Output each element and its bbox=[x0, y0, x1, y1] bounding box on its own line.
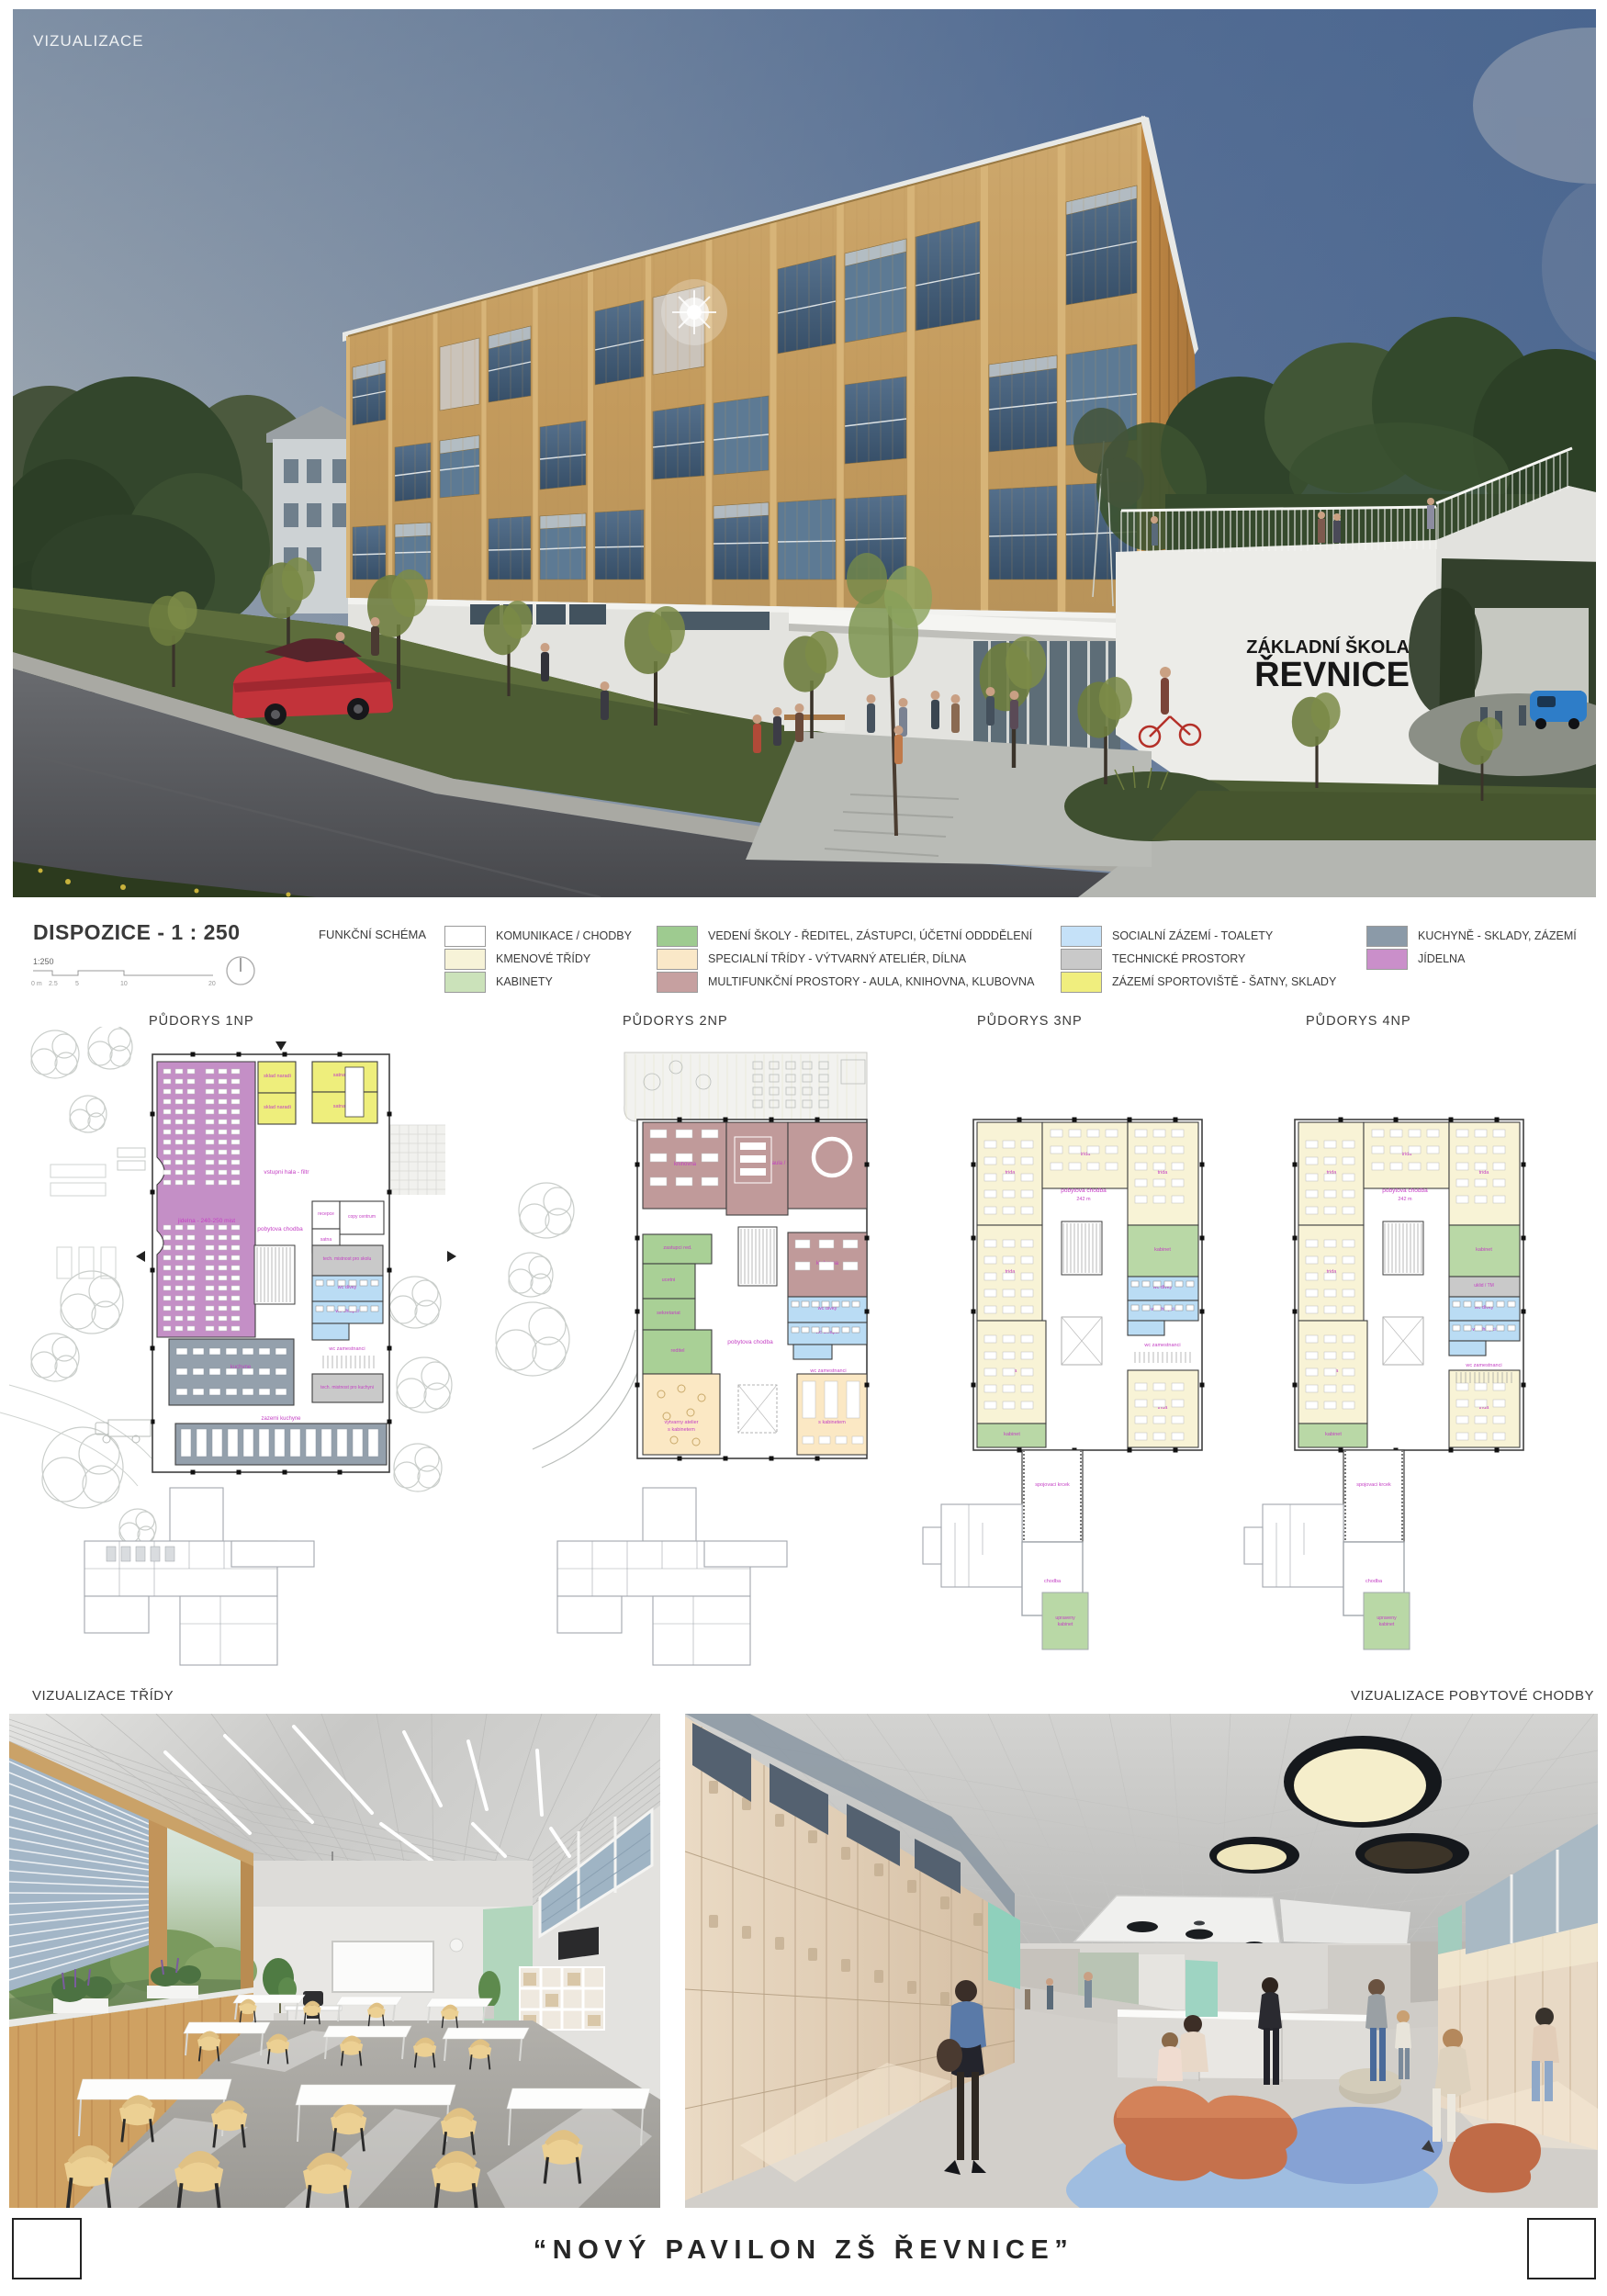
svg-text:kabinet: kabinet bbox=[1379, 1622, 1395, 1627]
svg-text:pobytova chodba: pobytova chodba bbox=[1061, 1187, 1107, 1194]
svg-text:upraveny: upraveny bbox=[1377, 1615, 1397, 1621]
svg-text:trida: trida bbox=[1158, 1170, 1169, 1176]
svg-text:knihovna: knihovna bbox=[674, 1162, 697, 1167]
svg-text:0 m: 0 m bbox=[31, 981, 42, 987]
svg-text:vstupni hala - filtr: vstupni hala - filtr bbox=[264, 1169, 309, 1176]
svg-text:pobytova chodba: pobytova chodba bbox=[1382, 1187, 1428, 1194]
svg-text:sklad naradi: sklad naradi bbox=[264, 1105, 291, 1110]
svg-text:ZÁKLADNÍ ŠKOLA: ZÁKLADNÍ ŠKOLA bbox=[1246, 636, 1410, 658]
svg-text:wc zamestnanci: wc zamestnanci bbox=[809, 1368, 846, 1374]
svg-text:tech. mistnost pro kuchyni: tech. mistnost pro kuchyni bbox=[320, 1385, 374, 1390]
svg-text:sekretariat: sekretariat bbox=[657, 1311, 680, 1316]
svg-text:copy centrum: copy centrum bbox=[348, 1214, 376, 1220]
svg-text:spojovaci krcek: spojovaci krcek bbox=[1035, 1482, 1070, 1488]
svg-text:zastupci red.: zastupci red. bbox=[663, 1245, 692, 1251]
svg-text:kabinet: kabinet bbox=[1325, 1432, 1342, 1437]
svg-text:5: 5 bbox=[75, 981, 79, 987]
svg-text:VIZUALIZACE: VIZUALIZACE bbox=[33, 32, 144, 50]
svg-text:wc zamestnanci: wc zamestnanci bbox=[328, 1346, 365, 1352]
svg-text:s kabinetem: s kabinetem bbox=[668, 1427, 695, 1433]
svg-text:pobytova chodba: pobytova chodba bbox=[257, 1226, 303, 1232]
svg-text:jidelna - 240-250 mist: jidelna - 240-250 mist bbox=[177, 1218, 235, 1224]
svg-text:242 m: 242 m bbox=[1076, 1197, 1091, 1202]
svg-text:chodba: chodba bbox=[1044, 1579, 1062, 1584]
svg-text:kabinet: kabinet bbox=[1476, 1247, 1492, 1253]
svg-text:chodba: chodba bbox=[1365, 1579, 1383, 1584]
svg-text:spojovaci krcek: spojovaci krcek bbox=[1356, 1482, 1391, 1488]
svg-text:reditel: reditel bbox=[671, 1348, 685, 1354]
svg-text:s kabinetem: s kabinetem bbox=[818, 1420, 846, 1425]
svg-text:ŘEVNICE: ŘEVNICE bbox=[1254, 654, 1410, 694]
svg-text:satna: satna bbox=[320, 1237, 332, 1243]
svg-text:ucetni: ucetni bbox=[662, 1277, 676, 1283]
svg-text:10: 10 bbox=[120, 981, 128, 987]
svg-text:kabinet: kabinet bbox=[1004, 1432, 1020, 1437]
svg-text:20: 20 bbox=[208, 981, 216, 987]
svg-text:242 m: 242 m bbox=[1398, 1197, 1412, 1202]
svg-text:recepce: recepce bbox=[318, 1211, 334, 1217]
svg-text:upraveny: upraveny bbox=[1055, 1615, 1075, 1621]
svg-text:zazemi kuchyne: zazemi kuchyne bbox=[261, 1416, 301, 1422]
svg-text:wc zamestnanci: wc zamestnanci bbox=[1465, 1363, 1501, 1368]
svg-text:pobytova chodba: pobytova chodba bbox=[727, 1339, 773, 1345]
svg-text:tech. mistnost pro skolu: tech. mistnost pro skolu bbox=[323, 1256, 372, 1262]
svg-text:uklid / TM: uklid / TM bbox=[1474, 1283, 1494, 1289]
svg-text:2.5: 2.5 bbox=[49, 981, 58, 987]
svg-text:kabinet: kabinet bbox=[1154, 1247, 1171, 1253]
svg-text:wc zamestnanci: wc zamestnanci bbox=[1143, 1343, 1180, 1348]
svg-text:kabinet: kabinet bbox=[1058, 1622, 1073, 1627]
svg-text:trida: trida bbox=[1479, 1170, 1490, 1176]
svg-text:1:250: 1:250 bbox=[33, 957, 54, 966]
svg-text:vytvarny atelier: vytvarny atelier bbox=[665, 1420, 699, 1425]
svg-text:sklad naradi: sklad naradi bbox=[264, 1074, 291, 1079]
